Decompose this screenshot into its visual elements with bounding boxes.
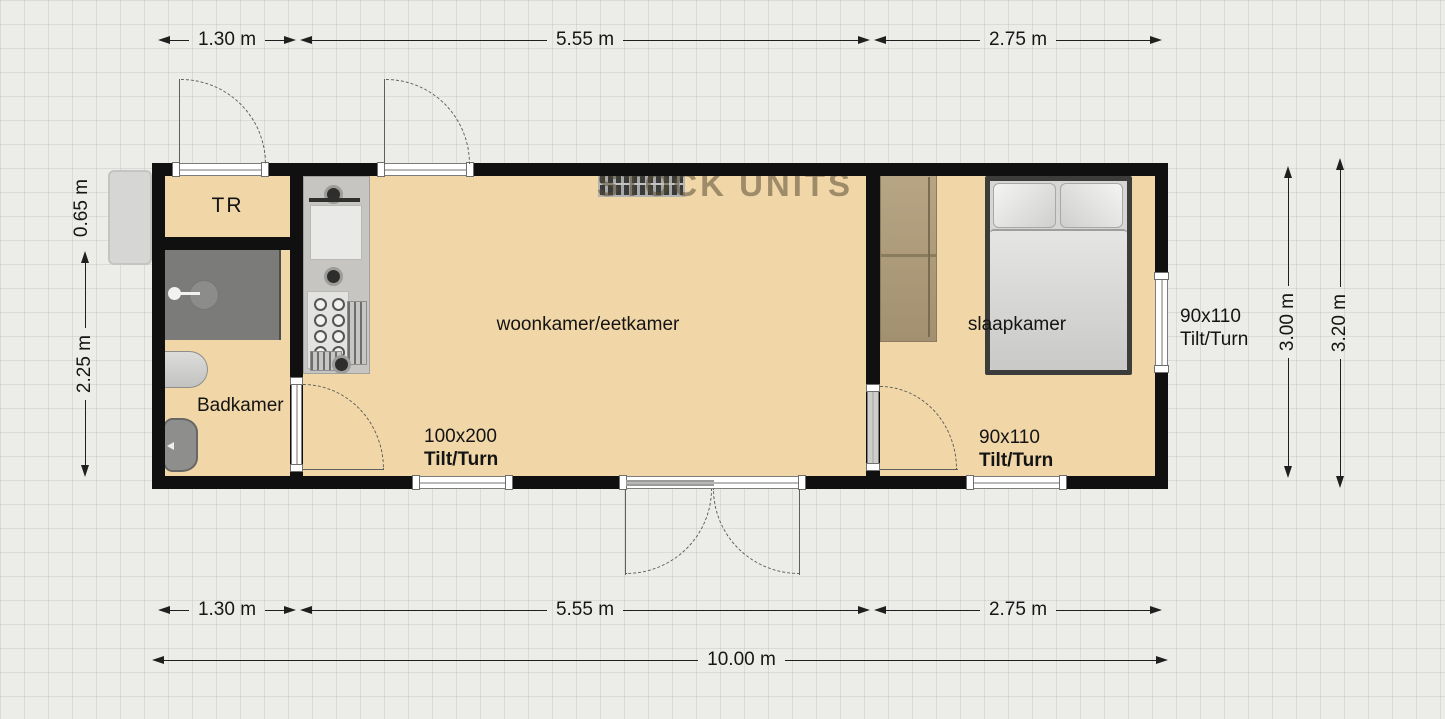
arrow-left-icon — [300, 606, 312, 614]
threshold-cap — [261, 162, 269, 177]
stove-knob — [314, 330, 327, 343]
dimension-line — [265, 610, 284, 611]
threshold-cap — [966, 475, 974, 490]
wardrobe — [880, 172, 937, 342]
door-threshold-bathroom — [291, 378, 302, 471]
door-swing-living — [386, 79, 470, 164]
arrow-up-icon — [1336, 158, 1344, 170]
window-bedroom-right — [1155, 273, 1168, 372]
dimension-line — [164, 660, 698, 661]
dimension-label: 2.75 m — [980, 29, 1056, 51]
dimension-bottom-2: 5.55 m — [300, 600, 870, 620]
window-size: 100x200 — [424, 426, 498, 449]
window-type: Tilt/Turn — [979, 450, 1053, 473]
threshold-cap — [466, 162, 474, 177]
threshold-cap — [290, 377, 303, 385]
wardrobe-front-line — [928, 177, 930, 337]
floor-plan-canvas: STOCK UNITS — [0, 0, 1445, 719]
arrow-left-icon — [300, 36, 312, 44]
dimension-line — [1056, 40, 1150, 41]
arrow-right-icon — [284, 606, 296, 614]
dimension-label: 2.75 m — [980, 599, 1056, 621]
arrow-down-icon — [1336, 476, 1344, 488]
arrow-left-icon — [874, 606, 886, 614]
arrow-right-icon — [1150, 36, 1162, 44]
dimension-line — [886, 40, 980, 41]
dimension-label: 10.00 m — [698, 649, 785, 671]
pillow — [1060, 183, 1123, 228]
arrow-right-icon — [284, 36, 296, 44]
dimension-line — [170, 610, 189, 611]
dimension-line — [623, 40, 858, 41]
door-threshold-bedroom — [867, 385, 879, 470]
dimension-line — [312, 40, 547, 41]
bathroom-sink — [164, 351, 208, 388]
dimension-line — [1288, 178, 1289, 286]
window-size: 90x110 — [1180, 306, 1248, 329]
dimension-line — [265, 40, 284, 41]
shower-drain — [189, 280, 219, 310]
threshold-cap — [1154, 365, 1169, 373]
arrow-right-icon — [1150, 606, 1162, 614]
arrow-down-icon — [1284, 466, 1292, 478]
arrow-left-icon — [158, 606, 170, 614]
arrow-left-icon — [874, 36, 886, 44]
stove-knob — [332, 314, 345, 327]
door-leaf-bedroom — [880, 469, 958, 470]
dimension-bottom-1: 1.30 m — [158, 600, 296, 620]
arrow-left-icon — [152, 656, 164, 664]
kitchen-counter — [303, 176, 370, 374]
shower — [165, 250, 281, 340]
threshold-cap — [866, 384, 880, 392]
dimension-line — [1340, 359, 1341, 476]
wall-left — [152, 163, 165, 489]
dimension-right-1: 3.00 m — [1277, 166, 1299, 478]
threshold-cap — [1154, 272, 1169, 280]
threshold-cap — [798, 475, 806, 490]
window-type: Tilt/Turn — [1180, 329, 1248, 352]
dimension-label: 1.30 m — [189, 29, 265, 51]
window-size: 90x110 — [979, 427, 1053, 450]
threshold-cap — [1059, 475, 1067, 490]
threshold-cap — [866, 463, 880, 471]
double-door-swing-right — [713, 489, 799, 574]
stove-knob — [314, 314, 327, 327]
window-label-bedroom-bottom: 90x110 Tilt/Turn — [979, 427, 1053, 473]
wall-tr-bathroom — [152, 237, 303, 250]
dimension-label: 5.55 m — [547, 599, 623, 621]
door-leaf-shade — [626, 480, 714, 486]
dimension-line — [886, 610, 980, 611]
arrow-right-icon — [1156, 656, 1168, 664]
dimension-line — [312, 610, 547, 611]
toilet-flush-icon — [167, 442, 174, 450]
double-door-leaf-right — [799, 489, 800, 575]
dimension-line — [1288, 358, 1289, 466]
bed — [985, 176, 1132, 375]
toilet — [162, 418, 198, 472]
dimension-label: 0.65 m — [71, 179, 93, 237]
dimension-line — [1056, 610, 1150, 611]
room-label-bedroom: slaapkamer — [968, 314, 1066, 336]
window-label-living: 100x200 Tilt/Turn — [424, 426, 498, 472]
dimension-line — [623, 610, 858, 611]
threshold-cap — [290, 464, 303, 472]
counter-edge — [309, 198, 360, 202]
arrow-up-icon — [81, 251, 89, 263]
dimension-left-1: 0.65 m — [70, 164, 94, 252]
door-leaf-tr — [179, 79, 180, 164]
threshold-cap — [412, 475, 420, 490]
dimension-left-2: 2.25 m — [74, 251, 96, 477]
oven-grill — [347, 301, 367, 365]
door-leaf-living — [384, 79, 385, 164]
duvet — [990, 229, 1127, 370]
faucet-knob — [332, 355, 351, 374]
dimension-top-1: 1.30 m — [158, 30, 296, 50]
dimension-right-2: 3.20 m — [1329, 158, 1351, 488]
dimension-label: 3.20 m — [1329, 294, 1351, 352]
exterior-utility-box — [108, 170, 152, 265]
arrow-right-icon — [858, 36, 870, 44]
arrow-right-icon — [858, 606, 870, 614]
threshold-cap — [505, 475, 513, 490]
double-door-swing-left — [626, 489, 712, 574]
stove-knob — [314, 298, 327, 311]
dimension-line — [170, 40, 189, 41]
dimension-label: 1.30 m — [189, 599, 265, 621]
dimension-label: 2.25 m — [74, 335, 96, 393]
dimension-label: 3.00 m — [1277, 293, 1299, 351]
dimension-top-3: 2.75 m — [874, 30, 1162, 50]
room-label-tr: TR — [165, 194, 290, 218]
window-living-bottom — [413, 476, 512, 489]
stove-knob — [332, 298, 345, 311]
dimension-total: 10.00 m — [152, 650, 1168, 670]
window-type: Tilt/Turn — [424, 449, 498, 472]
kitchen-appliance — [310, 205, 362, 260]
faucet-knob — [324, 267, 343, 286]
dimension-line — [1340, 170, 1341, 287]
threshold-cap — [377, 162, 385, 177]
dimension-bottom-3: 2.75 m — [874, 600, 1162, 620]
dimension-label: 5.55 m — [547, 29, 623, 51]
dimension-line — [85, 263, 86, 328]
dimension-line — [85, 400, 86, 465]
arrow-down-icon — [81, 465, 89, 477]
door-threshold-living — [378, 163, 473, 176]
door-leaf-bathroom — [303, 469, 384, 470]
wall-top — [152, 163, 1168, 176]
dimension-line — [785, 660, 1156, 661]
arrow-left-icon — [158, 36, 170, 44]
arrow-up-icon — [1284, 166, 1292, 178]
door-swing-tr — [181, 79, 266, 164]
dimension-top-2: 5.55 m — [300, 30, 870, 50]
pillow — [993, 183, 1056, 228]
window-bedroom-bottom — [967, 476, 1066, 489]
double-door-threshold — [620, 476, 805, 489]
shower-arm-icon — [174, 292, 200, 295]
threshold-cap — [172, 162, 180, 177]
stove-knob — [332, 330, 345, 343]
door-threshold-tr — [173, 163, 268, 176]
room-label-bathroom: Badkamer — [197, 395, 284, 417]
window-label-bedroom-right: 90x110 Tilt/Turn — [1180, 306, 1248, 352]
room-label-living: woonkamer/eetkamer — [497, 314, 680, 336]
